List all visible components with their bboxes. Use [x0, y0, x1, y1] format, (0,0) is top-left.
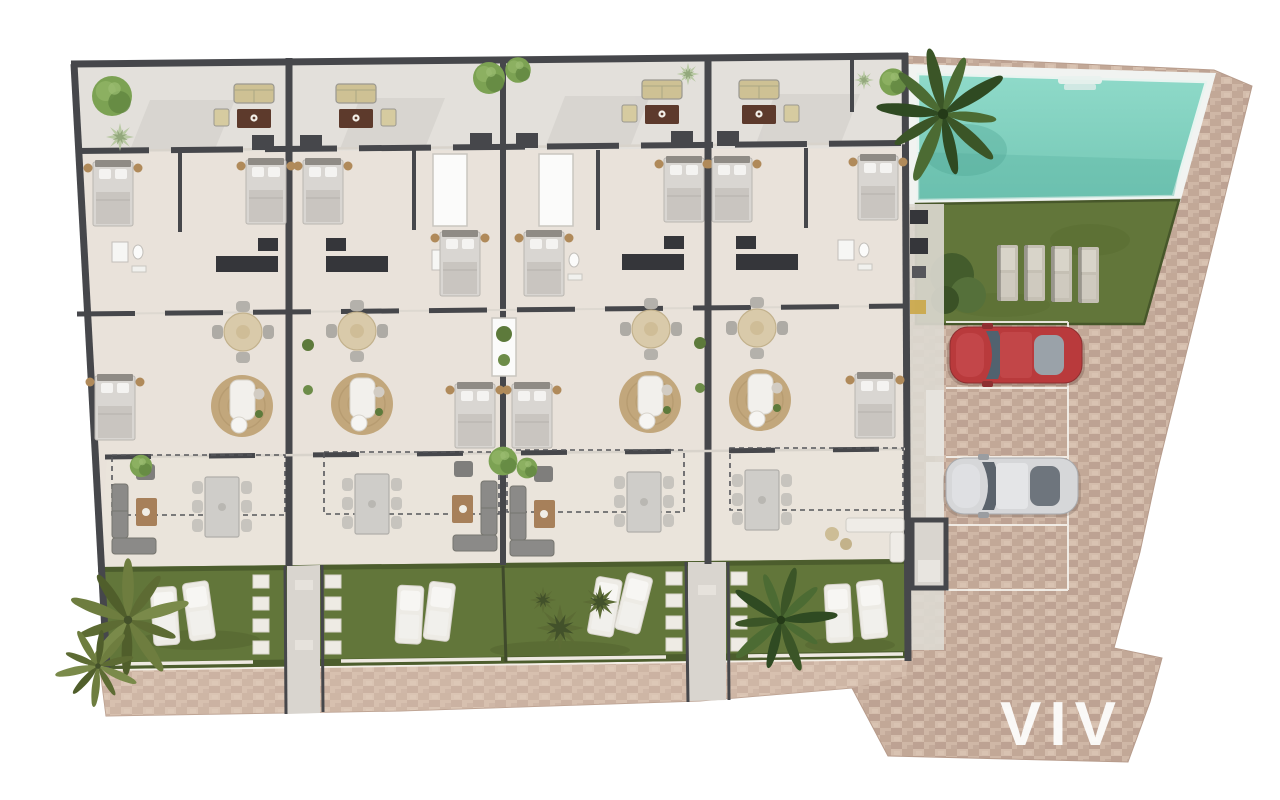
- garden-cycad: [583, 585, 618, 620]
- car-mirror: [982, 323, 993, 329]
- terrace-tree: [505, 57, 531, 83]
- terrace-tree: [879, 68, 906, 95]
- lightwell: [539, 154, 573, 226]
- communal-lawn: [916, 200, 1179, 324]
- courtyard-tree: [130, 455, 152, 477]
- courtyard-tree: [517, 458, 538, 479]
- terrace-tree: [473, 62, 505, 94]
- lawn-lounger: [1078, 247, 1099, 303]
- garden-lounger: [395, 585, 424, 644]
- garden-lounger: [856, 579, 888, 639]
- site-plan-svg: [0, 0, 1280, 800]
- house-plant: [695, 383, 705, 393]
- utility-box: [910, 238, 928, 254]
- terrace-bush: [854, 70, 874, 90]
- house-plant: [694, 337, 706, 349]
- garden-walkway: [688, 562, 726, 701]
- garden-cycad: [530, 587, 557, 614]
- house-plant: [302, 339, 314, 351]
- terrace-bush: [106, 123, 134, 151]
- car-mirror: [982, 381, 993, 387]
- terrace-tree: [92, 76, 132, 116]
- floor-plan-render: VIV: [0, 0, 1280, 800]
- car-white: [943, 454, 1081, 518]
- lawn-lounger: [1024, 245, 1045, 301]
- utility-box: [910, 210, 928, 224]
- parking-bumper: [926, 390, 944, 456]
- lawn-lounger: [997, 245, 1018, 301]
- pool-steps: [1058, 76, 1102, 84]
- courtyard-tree: [489, 447, 518, 476]
- parking-bumper: [926, 462, 944, 524]
- lawn-lounger: [1051, 246, 1072, 302]
- car-red: [947, 323, 1085, 387]
- watermark-text: VIV: [1000, 694, 1160, 756]
- car-hood: [956, 333, 984, 377]
- utility-box: [910, 300, 926, 314]
- car-roof: [1000, 332, 1032, 378]
- car-rear-glass: [1034, 335, 1064, 375]
- terrace-bush: [677, 63, 699, 85]
- utility-box: [912, 266, 926, 278]
- house-plant: [303, 385, 313, 395]
- lightwell: [433, 154, 467, 226]
